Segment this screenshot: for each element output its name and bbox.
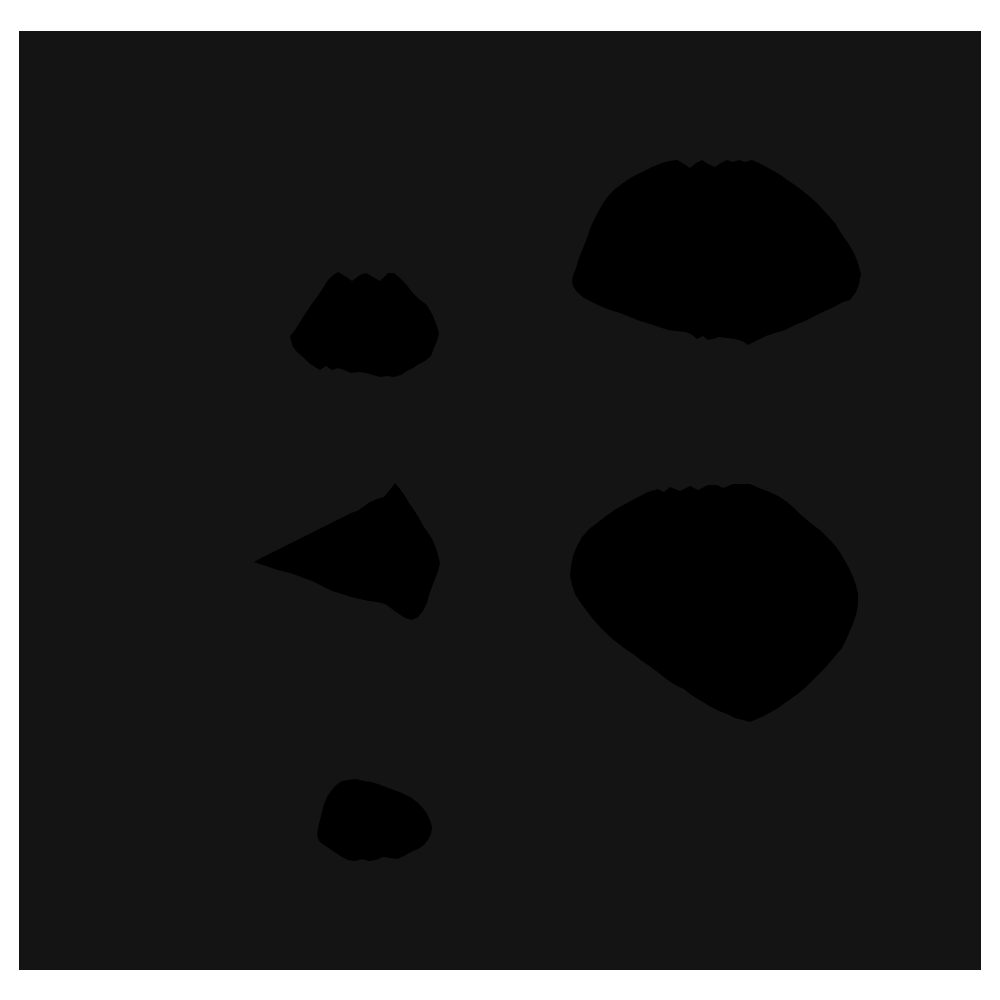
page-background bbox=[0, 0, 1000, 1000]
blob-middle-right-large bbox=[570, 484, 858, 722]
blobs-svg bbox=[19, 31, 981, 970]
blob-top-right-large bbox=[572, 160, 861, 345]
blob-bottom-small bbox=[317, 779, 432, 861]
figure-page: { "figure": { "page_background": "#fffff… bbox=[0, 0, 1000, 1000]
blob-top-left-small bbox=[290, 272, 439, 377]
plot-canvas bbox=[19, 31, 981, 970]
blob-middle-left bbox=[254, 483, 440, 620]
